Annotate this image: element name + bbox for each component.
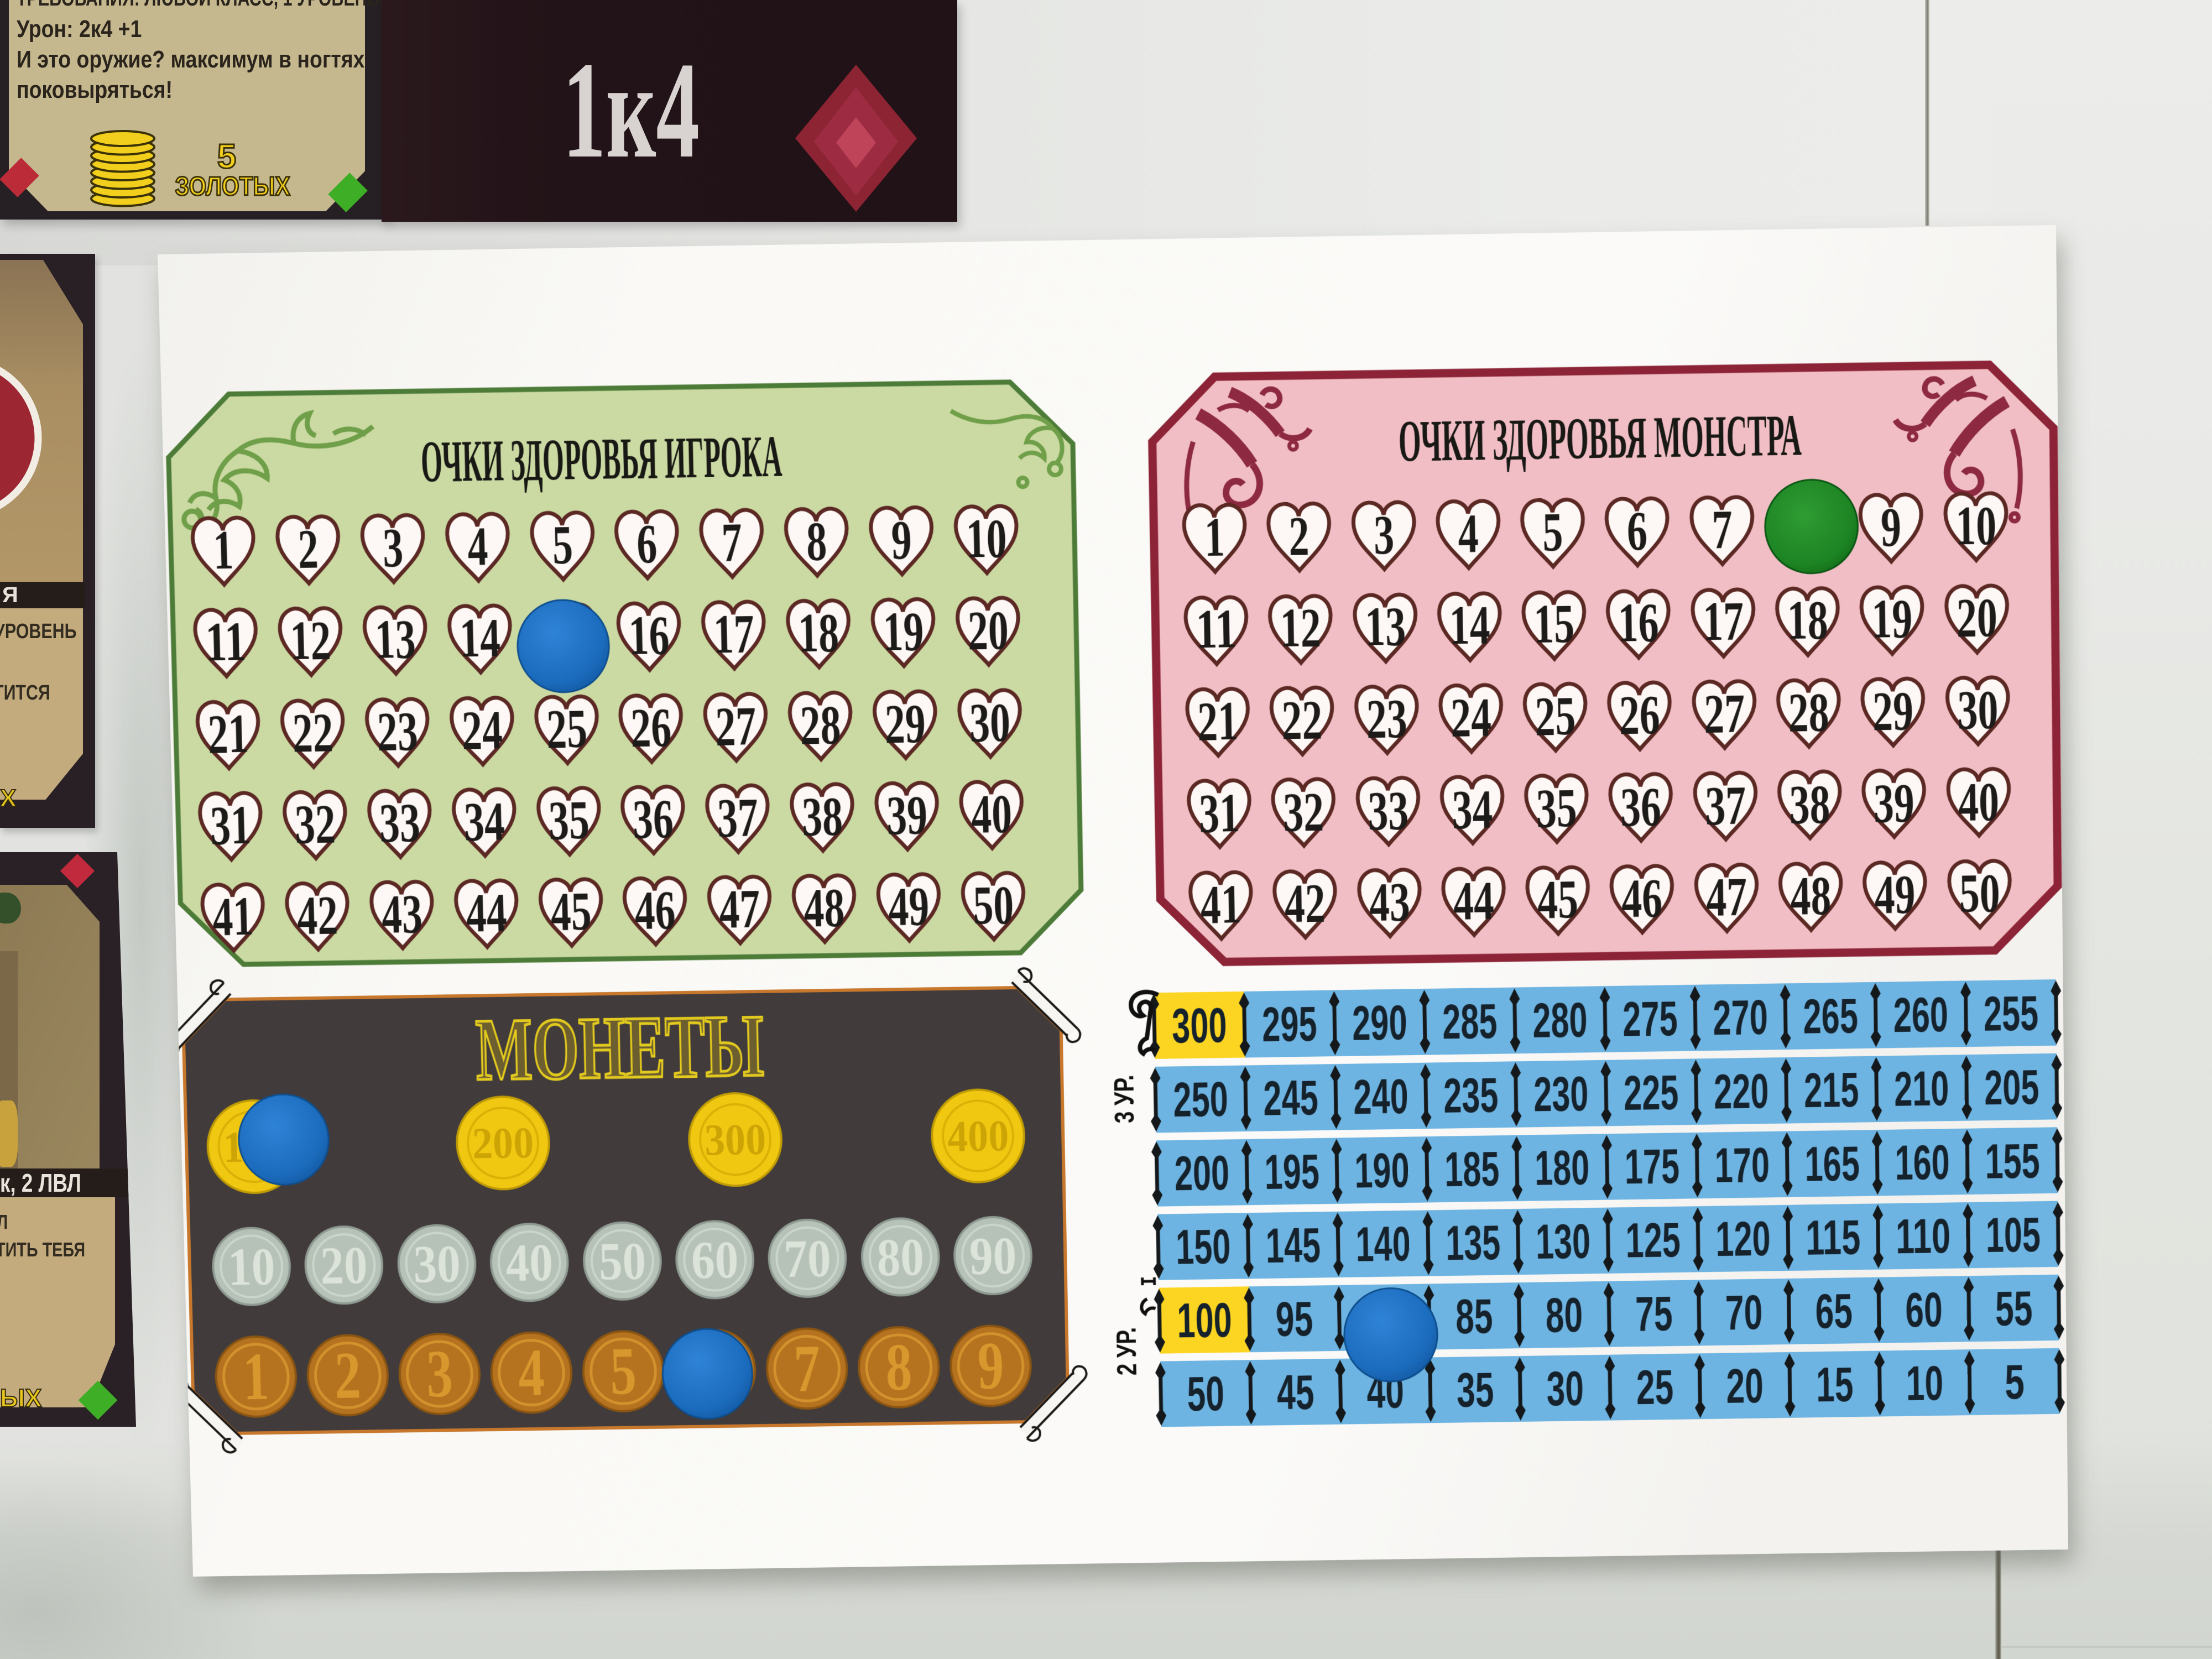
svg-text:42: 42 xyxy=(296,884,338,946)
svg-text:3: 3 xyxy=(1373,503,1395,566)
svg-text:255: 255 xyxy=(1983,985,2038,1041)
svg-text:6: 6 xyxy=(1626,499,1647,562)
svg-text:125: 125 xyxy=(1625,1212,1681,1267)
svg-text:5: 5 xyxy=(609,1334,637,1409)
svg-text:90: 90 xyxy=(969,1226,1017,1286)
svg-text:70: 70 xyxy=(783,1229,831,1289)
svg-text:29: 29 xyxy=(1872,680,1914,742)
svg-text:4: 4 xyxy=(518,1335,546,1410)
svg-text:20: 20 xyxy=(320,1235,368,1296)
svg-text:265: 265 xyxy=(1803,988,1858,1044)
svg-text:85: 85 xyxy=(1455,1288,1493,1344)
svg-text:24: 24 xyxy=(1450,686,1491,748)
svg-text:24: 24 xyxy=(461,698,503,761)
svg-text:МОНЕТЫ: МОНЕТЫ xyxy=(474,997,765,1099)
svg-text:46: 46 xyxy=(1621,867,1663,928)
svg-text:15: 15 xyxy=(1816,1357,1854,1412)
svg-text:12: 12 xyxy=(1280,596,1322,659)
svg-text:41: 41 xyxy=(212,885,254,947)
svg-text:45: 45 xyxy=(550,880,592,942)
svg-text:300: 300 xyxy=(704,1115,766,1165)
svg-text:35: 35 xyxy=(548,789,590,851)
svg-text:38: 38 xyxy=(1789,773,1830,835)
svg-text:225: 225 xyxy=(1623,1065,1679,1120)
svg-text:46: 46 xyxy=(634,879,676,941)
svg-text:23: 23 xyxy=(1366,687,1407,749)
svg-text:200: 200 xyxy=(1174,1145,1230,1201)
svg-text:70: 70 xyxy=(1725,1285,1763,1340)
svg-text:31: 31 xyxy=(210,794,252,855)
svg-text:130: 130 xyxy=(1535,1214,1590,1269)
svg-text:6: 6 xyxy=(636,512,658,575)
svg-text:2 УР.: 2 УР. xyxy=(1110,1327,1142,1376)
svg-text:26: 26 xyxy=(630,696,672,758)
svg-text:270: 270 xyxy=(1713,989,1768,1045)
svg-text:25: 25 xyxy=(1636,1359,1674,1414)
svg-text:100: 100 xyxy=(1177,1292,1233,1348)
svg-text:26: 26 xyxy=(1619,683,1660,745)
svg-text:55: 55 xyxy=(1995,1281,2033,1336)
svg-text:295: 295 xyxy=(1261,996,1317,1052)
svg-text:9: 9 xyxy=(977,1329,1004,1404)
svg-text:16: 16 xyxy=(1618,591,1659,654)
svg-text:10: 10 xyxy=(1906,1355,1943,1410)
svg-text:10: 10 xyxy=(1955,494,1997,556)
svg-text:285: 285 xyxy=(1442,994,1498,1050)
svg-text:20: 20 xyxy=(1956,586,1997,648)
svg-text:4: 4 xyxy=(467,515,489,577)
svg-text:43: 43 xyxy=(1369,870,1410,932)
svg-text:5: 5 xyxy=(552,513,573,576)
svg-text:10: 10 xyxy=(227,1237,276,1297)
svg-text:22: 22 xyxy=(291,701,333,764)
svg-text:8: 8 xyxy=(806,509,827,572)
svg-text:300: 300 xyxy=(1171,998,1227,1053)
svg-text:34: 34 xyxy=(1452,778,1493,841)
svg-text:37: 37 xyxy=(1705,774,1746,837)
svg-text:11: 11 xyxy=(205,610,247,672)
svg-text:36: 36 xyxy=(632,787,674,850)
svg-text:45: 45 xyxy=(1537,868,1578,930)
svg-text:140: 140 xyxy=(1355,1216,1411,1271)
svg-text:22: 22 xyxy=(1281,688,1323,751)
svg-text:150: 150 xyxy=(1175,1219,1231,1274)
svg-text:30: 30 xyxy=(1957,678,1999,740)
svg-text:215: 215 xyxy=(1804,1062,1859,1118)
svg-text:235: 235 xyxy=(1443,1067,1499,1123)
svg-text:240: 240 xyxy=(1353,1069,1409,1124)
svg-text:290: 290 xyxy=(1352,995,1407,1051)
svg-text:37: 37 xyxy=(717,786,759,849)
svg-text:120: 120 xyxy=(1715,1211,1771,1266)
svg-text:43: 43 xyxy=(381,883,423,945)
svg-text:12: 12 xyxy=(289,609,331,671)
svg-text:220: 220 xyxy=(1713,1063,1768,1119)
svg-text:1: 1 xyxy=(242,1339,270,1414)
svg-text:5: 5 xyxy=(1542,500,1563,563)
svg-text:33: 33 xyxy=(1368,779,1409,842)
svg-text:205: 205 xyxy=(1984,1060,2039,1115)
svg-text:49: 49 xyxy=(1874,863,1916,925)
svg-text:195: 195 xyxy=(1264,1144,1320,1199)
svg-text:17: 17 xyxy=(713,602,755,665)
svg-text:4: 4 xyxy=(1458,502,1479,564)
svg-text:280: 280 xyxy=(1532,992,1588,1048)
svg-text:13: 13 xyxy=(1364,595,1406,658)
svg-text:33: 33 xyxy=(379,791,421,853)
svg-text:145: 145 xyxy=(1265,1218,1321,1273)
svg-text:110: 110 xyxy=(1895,1208,1950,1264)
svg-text:50: 50 xyxy=(1959,862,2000,924)
svg-text:14: 14 xyxy=(459,606,501,669)
svg-text:23: 23 xyxy=(377,700,419,762)
svg-text:32: 32 xyxy=(294,792,336,854)
svg-text:15: 15 xyxy=(1533,592,1574,655)
svg-text:ОЧКИ ЗДОРОВЬЯ МОНСТРА: ОЧКИ ЗДОРОВЬЯ МОНСТРА xyxy=(1398,403,1802,474)
svg-text:50: 50 xyxy=(1187,1366,1225,1421)
svg-text:28: 28 xyxy=(800,693,842,756)
svg-text:25: 25 xyxy=(1535,685,1576,747)
svg-text:27: 27 xyxy=(714,695,757,757)
svg-text:1: 1 xyxy=(1204,505,1225,568)
svg-text:1: 1 xyxy=(212,519,234,581)
svg-text:180: 180 xyxy=(1534,1140,1590,1195)
svg-text:160: 160 xyxy=(1895,1135,1950,1190)
svg-text:14: 14 xyxy=(1449,593,1490,656)
svg-text:10: 10 xyxy=(966,507,1008,569)
svg-text:29: 29 xyxy=(884,692,926,754)
svg-text:170: 170 xyxy=(1714,1137,1770,1192)
svg-text:35: 35 xyxy=(1536,776,1577,839)
svg-text:34: 34 xyxy=(463,790,505,852)
svg-text:2: 2 xyxy=(333,1338,362,1413)
svg-text:115: 115 xyxy=(1806,1209,1861,1265)
svg-text:40: 40 xyxy=(1958,770,2000,833)
svg-text:185: 185 xyxy=(1444,1141,1500,1197)
svg-text:175: 175 xyxy=(1624,1139,1679,1194)
svg-text:36: 36 xyxy=(1620,775,1661,838)
svg-text:18: 18 xyxy=(1787,588,1828,651)
svg-text:19: 19 xyxy=(882,600,924,662)
svg-text:9: 9 xyxy=(1880,495,1901,558)
svg-text:80: 80 xyxy=(1545,1287,1583,1343)
svg-text:210: 210 xyxy=(1894,1061,1949,1117)
svg-text:19: 19 xyxy=(1871,587,1913,650)
svg-text:48: 48 xyxy=(803,876,845,938)
svg-text:250: 250 xyxy=(1173,1071,1229,1126)
svg-text:42: 42 xyxy=(1284,872,1326,933)
svg-text:50: 50 xyxy=(972,874,1014,936)
svg-text:105: 105 xyxy=(1985,1207,2041,1262)
svg-text:2: 2 xyxy=(1288,504,1310,567)
svg-text:80: 80 xyxy=(877,1227,925,1287)
svg-text:27: 27 xyxy=(1704,682,1745,744)
svg-text:65: 65 xyxy=(1815,1284,1853,1339)
svg-text:20: 20 xyxy=(967,598,1009,661)
svg-text:49: 49 xyxy=(888,875,930,937)
svg-text:32: 32 xyxy=(1282,780,1324,843)
svg-text:35: 35 xyxy=(1456,1362,1494,1417)
svg-text:9: 9 xyxy=(891,508,912,571)
svg-text:75: 75 xyxy=(1635,1286,1673,1341)
svg-text:7: 7 xyxy=(1712,498,1733,560)
svg-text:44: 44 xyxy=(1453,869,1494,931)
svg-text:200: 200 xyxy=(472,1119,534,1168)
svg-text:5: 5 xyxy=(2005,1354,2025,1409)
svg-text:155: 155 xyxy=(1985,1133,2040,1188)
svg-text:245: 245 xyxy=(1263,1070,1319,1125)
svg-text:135: 135 xyxy=(1445,1215,1501,1270)
svg-text:39: 39 xyxy=(1873,771,1914,834)
svg-text:31: 31 xyxy=(1198,781,1240,844)
svg-text:28: 28 xyxy=(1788,681,1829,743)
svg-text:ОЧКИ ЗДОРОВЬЯ ИГРОКА: ОЧКИ ЗДОРОВЬЯ ИГРОКА xyxy=(420,424,783,494)
svg-text:38: 38 xyxy=(801,785,843,847)
svg-text:3: 3 xyxy=(426,1337,454,1412)
svg-text:40: 40 xyxy=(505,1233,554,1293)
svg-text:60: 60 xyxy=(691,1230,739,1290)
svg-text:1к4: 1к4 xyxy=(562,34,700,187)
svg-text:3: 3 xyxy=(382,516,404,578)
svg-text:21: 21 xyxy=(1197,690,1239,752)
svg-text:48: 48 xyxy=(1790,864,1832,926)
svg-text:11: 11 xyxy=(1195,597,1237,660)
svg-text:50: 50 xyxy=(598,1232,647,1292)
svg-text:45: 45 xyxy=(1276,1365,1314,1420)
svg-text:400: 400 xyxy=(947,1112,1009,1161)
svg-text:7: 7 xyxy=(793,1332,821,1406)
svg-text:190: 190 xyxy=(1354,1142,1410,1198)
svg-text:17: 17 xyxy=(1703,589,1744,652)
svg-text:165: 165 xyxy=(1804,1136,1860,1191)
svg-text:20: 20 xyxy=(1726,1358,1764,1413)
svg-text:275: 275 xyxy=(1623,991,1678,1047)
svg-text:8: 8 xyxy=(885,1330,912,1405)
svg-text:95: 95 xyxy=(1275,1291,1313,1347)
svg-text:60: 60 xyxy=(1905,1282,1943,1337)
svg-text:44: 44 xyxy=(466,881,508,943)
svg-text:39: 39 xyxy=(886,784,928,846)
svg-text:260: 260 xyxy=(1893,987,1948,1042)
svg-text:40: 40 xyxy=(971,782,1013,845)
svg-text:25: 25 xyxy=(546,697,588,760)
svg-text:21: 21 xyxy=(207,702,249,765)
svg-text:7: 7 xyxy=(721,511,743,573)
svg-text:18: 18 xyxy=(797,601,839,664)
svg-text:3 УР.: 3 УР. xyxy=(1108,1074,1140,1123)
svg-text:30: 30 xyxy=(413,1234,461,1295)
svg-text:47: 47 xyxy=(1706,865,1747,927)
svg-text:2: 2 xyxy=(297,517,319,580)
svg-text:41: 41 xyxy=(1200,873,1241,935)
svg-text:16: 16 xyxy=(628,604,670,666)
svg-text:230: 230 xyxy=(1533,1066,1589,1121)
svg-text:30: 30 xyxy=(1546,1361,1584,1416)
svg-text:47: 47 xyxy=(719,878,761,940)
svg-text:13: 13 xyxy=(374,608,416,670)
svg-text:30: 30 xyxy=(969,691,1011,753)
